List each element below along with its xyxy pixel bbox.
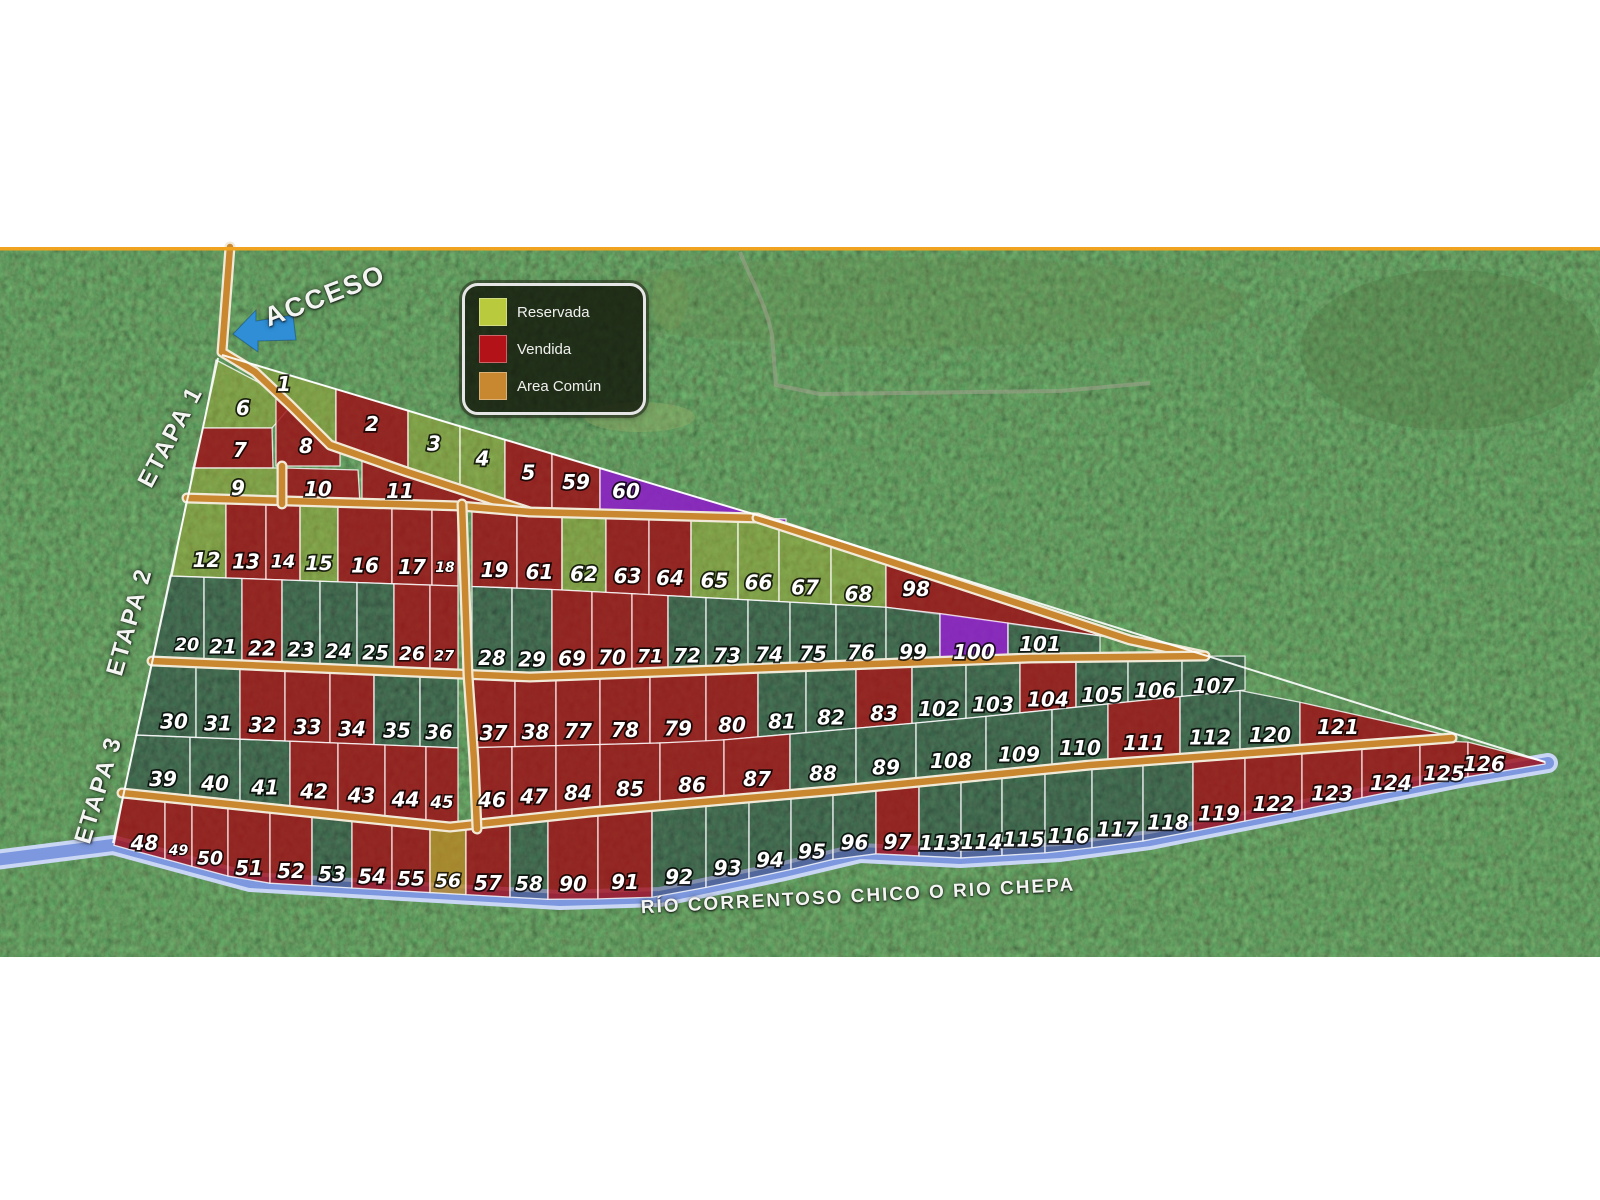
lot-67-label: 67 [791, 576, 819, 600]
lot-33-label: 33 [294, 715, 322, 739]
lot-121-label: 121 [1317, 715, 1359, 739]
lot-99-label: 99 [899, 640, 927, 664]
vendida-swatch [479, 335, 507, 363]
lot-8-label: 8 [299, 434, 313, 458]
lot-117-label: 117 [1097, 818, 1139, 842]
lot-104-label: 104 [1027, 688, 1069, 712]
lot-74-label: 74 [755, 643, 783, 667]
lot-78-label: 78 [611, 718, 639, 742]
lot-27-label: 27 [434, 647, 455, 664]
lot-12-label: 12 [193, 548, 221, 572]
lot-97-label: 97 [884, 830, 912, 854]
lot-43 [338, 743, 385, 820]
lot-79-label: 79 [664, 716, 692, 740]
lot-113-label: 113 [919, 831, 961, 855]
lot-4-label: 4 [475, 446, 490, 470]
lot-91-label: 91 [611, 870, 639, 894]
lot-23-label: 23 [287, 638, 314, 661]
lot-116-label: 116 [1048, 824, 1090, 848]
lot-45-label: 45 [429, 793, 453, 812]
lot-59-label: 59 [562, 470, 590, 494]
lot-103-label: 103 [972, 692, 1014, 716]
lot-100-label: 100 [953, 640, 995, 664]
lot-66-label: 66 [745, 570, 773, 594]
lot-15-label: 15 [305, 552, 332, 575]
lot-125-label: 125 [1423, 762, 1465, 786]
vendida-label: Vendida [517, 341, 571, 358]
lot-77-label: 77 [564, 719, 592, 743]
lot-101-label: 101 [1019, 632, 1061, 656]
legend-item-area-comun: Area Común [479, 372, 631, 400]
lot-3-label: 3 [427, 431, 441, 455]
lot-126-label: 126 [1463, 752, 1505, 776]
lot-92-label: 92 [665, 865, 693, 889]
lot-47-label: 47 [519, 784, 548, 808]
lot-106-label: 106 [1134, 679, 1176, 703]
lot-22-label: 22 [248, 636, 276, 660]
lot-56-label: 56 [435, 871, 461, 892]
lot-7-label: 7 [233, 438, 247, 462]
lot-85-label: 85 [616, 777, 644, 801]
lot-50-label: 50 [197, 848, 223, 869]
lot-10-label: 10 [304, 477, 332, 501]
lot-82-label: 82 [817, 705, 845, 729]
lot-124-label: 124 [1370, 771, 1412, 795]
lot-119-label: 119 [1198, 801, 1240, 825]
lot-83-label: 83 [870, 701, 898, 725]
lot-28-label: 28 [478, 646, 506, 670]
lot-9-label: 9 [231, 476, 245, 500]
lot-61-label: 61 [526, 560, 554, 584]
lot-13-label: 13 [232, 549, 260, 573]
map-image: 1234559606789101112131415161718196162636… [0, 0, 1600, 1200]
lot-20-label: 20 [175, 635, 200, 655]
lot-80-label: 80 [718, 713, 746, 737]
lot-84-label: 84 [564, 781, 592, 805]
lot-108-label: 108 [930, 749, 972, 773]
lot-11-label: 11 [386, 479, 414, 503]
lot-5-label: 5 [522, 461, 536, 485]
lot-49-label: 49 [168, 843, 189, 859]
lot-52-label: 52 [277, 859, 305, 883]
lot-105-label: 105 [1081, 683, 1123, 707]
lot-123-label: 123 [1311, 781, 1353, 805]
lot-43-label: 43 [347, 784, 376, 808]
lot-62-label: 62 [570, 562, 598, 586]
lot-60-label: 60 [612, 479, 640, 503]
lot-95-label: 95 [798, 839, 826, 863]
lot-58-label: 58 [515, 872, 543, 895]
lot-18-label: 18 [435, 560, 455, 576]
lot-114-label: 114 [961, 830, 1003, 854]
lot-31-label: 31 [204, 711, 232, 735]
lot-63-label: 63 [614, 564, 642, 588]
lot-75-label: 75 [799, 642, 827, 666]
lot-36-label: 36 [425, 721, 453, 744]
lot-30-label: 30 [160, 710, 188, 734]
area-comun-label: Area Común [517, 378, 601, 395]
lot-53-label: 53 [318, 862, 346, 886]
lot-29-label: 29 [518, 647, 546, 671]
lot-26-label: 26 [399, 644, 425, 665]
lot-115-label: 115 [1003, 827, 1045, 851]
lot-51-label: 51 [235, 856, 263, 880]
lot-44-label: 44 [391, 787, 420, 811]
lot-54-label: 54 [358, 865, 386, 889]
lot-76-label: 76 [847, 641, 875, 665]
lot-69-label: 69 [558, 646, 586, 670]
lot-48-label: 48 [130, 831, 159, 855]
lot-32-label: 32 [249, 713, 277, 737]
lot-47 [512, 746, 556, 821]
lot-70-label: 70 [598, 646, 626, 670]
lot-72-label: 72 [673, 645, 700, 668]
lot-87-label: 87 [743, 767, 771, 791]
lot-6-label: 6 [236, 396, 250, 420]
lot-37-label: 37 [480, 721, 508, 745]
lot-14-label: 14 [271, 553, 296, 573]
legend-item-reservada: Reservada [479, 298, 631, 326]
lot-39-label: 39 [149, 767, 177, 791]
lot-44 [385, 745, 426, 825]
lot-57-label: 57 [474, 871, 502, 895]
lot-96-label: 96 [841, 830, 869, 854]
lot-118-label: 118 [1147, 811, 1189, 835]
lot-16-label: 16 [351, 553, 379, 577]
lot-42 [290, 741, 338, 815]
reservada-swatch [479, 298, 507, 326]
lot-41-label: 41 [250, 776, 279, 800]
lot-89-label: 89 [872, 755, 900, 779]
lot-112-label: 112 [1189, 725, 1231, 749]
lot-19-label: 19 [481, 558, 509, 582]
lot-17-label: 17 [398, 555, 426, 579]
lot-122-label: 122 [1253, 792, 1295, 816]
lot-120-label: 120 [1249, 723, 1291, 747]
lot-46-label: 46 [477, 788, 506, 812]
lot-2-label: 2 [365, 412, 379, 436]
lot-25-label: 25 [362, 642, 389, 665]
lot-40-label: 40 [200, 771, 229, 795]
legend-item-vendida: Vendida [479, 335, 631, 363]
lot-107-label: 107 [1193, 674, 1235, 698]
lot-109-label: 109 [998, 742, 1040, 766]
lot-93-label: 93 [714, 856, 742, 880]
lot-98-label: 98 [902, 577, 930, 601]
lot-88-label: 88 [809, 761, 837, 785]
lot-90-label: 90 [559, 872, 587, 896]
lot-21-label: 21 [209, 635, 236, 658]
lot-24-label: 24 [325, 640, 352, 663]
lot-102-label: 102 [918, 697, 960, 721]
lot-71-label: 71 [637, 646, 663, 667]
lot-73-label: 73 [713, 643, 741, 667]
area-comun-swatch [479, 372, 507, 400]
legend: Reservada Vendida Area Común [462, 283, 646, 415]
lot-110-label: 110 [1059, 736, 1101, 760]
land-subdivision-map: 1234559606789101112131415161718196162636… [0, 0, 1600, 1200]
lot-94-label: 94 [756, 848, 784, 872]
reservada-label: Reservada [517, 304, 590, 321]
lot-86-label: 86 [678, 773, 706, 797]
lot-64-label: 64 [656, 566, 684, 590]
lot-34-label: 34 [338, 717, 366, 741]
lot-55-label: 55 [397, 868, 424, 891]
lot-38-label: 38 [522, 720, 550, 744]
lot-35-label: 35 [383, 719, 411, 743]
lot-1-label: 1 [277, 372, 291, 396]
map-top-border [0, 247, 1600, 251]
lot-111-label: 111 [1123, 731, 1165, 755]
lot-81-label: 81 [768, 709, 796, 733]
lot-68-label: 68 [845, 582, 873, 606]
lot-42-label: 42 [299, 780, 328, 804]
lot-45 [426, 747, 458, 827]
lot-65-label: 65 [701, 568, 729, 592]
